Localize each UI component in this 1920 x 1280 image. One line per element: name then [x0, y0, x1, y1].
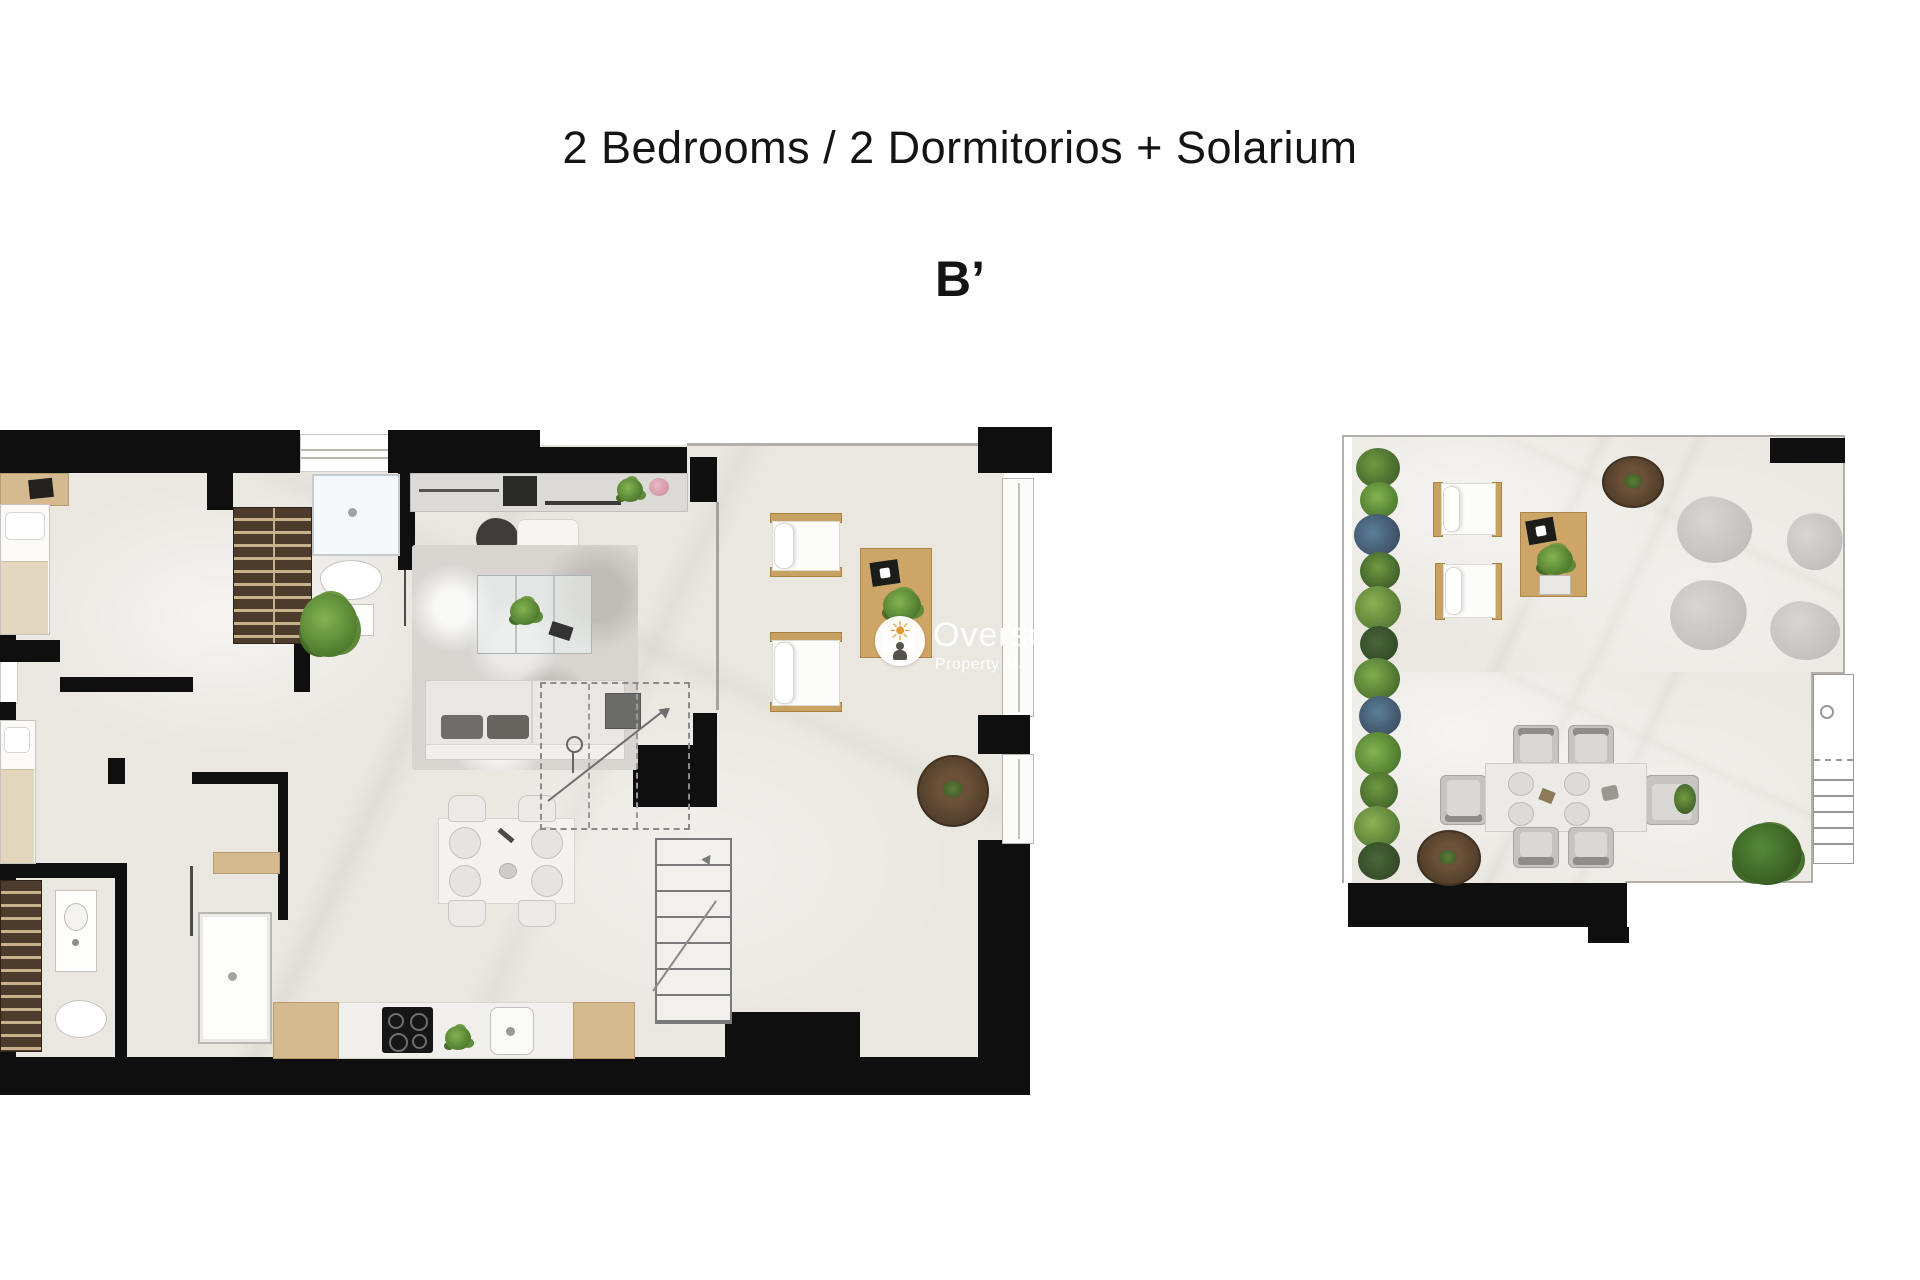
dining-table	[1485, 763, 1647, 832]
watermark-line1: Overseas	[933, 616, 1087, 655]
sun-icon: ☀	[884, 618, 916, 644]
round-planter	[1602, 456, 1664, 508]
hedge-plant	[1359, 696, 1401, 736]
dining-chair	[1568, 725, 1614, 767]
stair-access	[1813, 674, 1854, 864]
floor-plan-sheet: 2 Bedrooms / 2 Dormitorios + Solarium B’	[0, 0, 1920, 1280]
hedge-plant	[1360, 772, 1398, 810]
place-setting	[1564, 772, 1590, 796]
plan-outline	[1843, 437, 1845, 674]
dining-chair	[1645, 775, 1699, 825]
hedge-plant	[1360, 482, 1398, 518]
place-setting	[1508, 802, 1534, 826]
dining-chair	[1568, 827, 1614, 868]
wall	[1770, 438, 1845, 463]
hedge-plant	[1355, 586, 1401, 630]
solarium-floor	[1352, 437, 1843, 672]
wall	[1588, 927, 1629, 943]
watermark: ☀ Overseas Property Mark	[875, 612, 1125, 684]
place-setting	[1508, 772, 1534, 796]
sun-lounger	[1435, 563, 1502, 618]
hedge-plant	[1360, 552, 1400, 590]
hedge-plant	[1358, 842, 1400, 880]
hedge-plant	[1360, 626, 1398, 662]
plan-outline	[1342, 435, 1845, 437]
plant-icon	[1537, 545, 1573, 575]
watermark-line2: Property Mark	[935, 656, 1042, 674]
dining-chair	[1513, 827, 1559, 868]
center-item	[1538, 788, 1555, 804]
person-icon	[893, 650, 907, 660]
bush	[1732, 823, 1802, 885]
place-setting	[1564, 802, 1590, 826]
sun-lounger	[1433, 482, 1502, 535]
plan-outline	[1625, 881, 1813, 883]
plant-icon	[1674, 784, 1696, 814]
dining-chair	[1440, 775, 1487, 825]
hedge-plant	[1355, 732, 1401, 776]
dining-chair	[1513, 725, 1559, 767]
hedge-plant	[1354, 514, 1400, 556]
stair-post-symbol	[1820, 705, 1834, 719]
wall	[1348, 883, 1627, 927]
speaker	[1525, 517, 1557, 545]
pillow	[1445, 567, 1462, 615]
hedge-plant	[1354, 658, 1400, 700]
side-table	[1520, 512, 1587, 597]
watermark-badge: ☀	[875, 616, 925, 666]
person-icon	[896, 642, 904, 650]
pillow	[1443, 486, 1460, 532]
center-item	[1601, 784, 1620, 801]
round-planter	[1417, 830, 1481, 886]
tray	[1539, 575, 1571, 595]
plan-outline	[1342, 435, 1344, 883]
